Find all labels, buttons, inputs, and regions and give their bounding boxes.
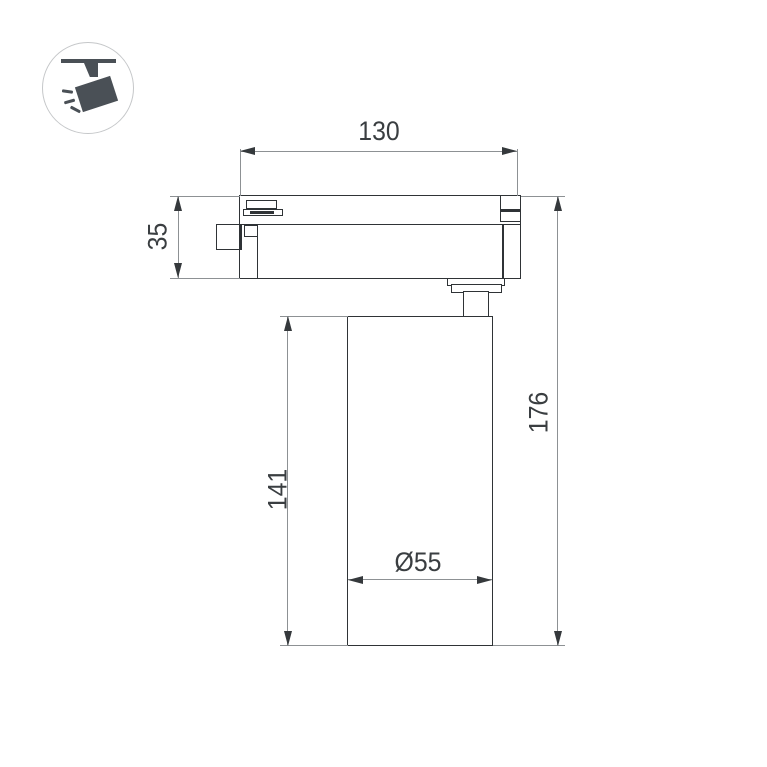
extension-line bbox=[240, 149, 241, 196]
technical-drawing-page: 130 35 141 176 Ø55 bbox=[0, 0, 767, 767]
dimension-label-body-height: 141 bbox=[265, 448, 292, 531]
icon-light-ray-icon bbox=[70, 106, 81, 113]
arrowhead-icon bbox=[348, 576, 363, 584]
icon-light-ray-icon bbox=[62, 89, 73, 93]
arrowhead-icon bbox=[554, 196, 562, 211]
arrowhead-icon bbox=[174, 196, 182, 211]
arrowhead-icon bbox=[240, 147, 255, 155]
adapter-inner-left-line bbox=[257, 225, 259, 279]
adapter-divider-line bbox=[239, 224, 521, 226]
icon-track-bar bbox=[61, 59, 116, 63]
arrowhead-icon bbox=[284, 316, 292, 331]
lamp-cylinder-body bbox=[347, 316, 493, 646]
dimension-label-adapter-height: 35 bbox=[145, 200, 172, 274]
dimension-label-diameter: Ø55 bbox=[367, 549, 468, 576]
arrowhead-icon bbox=[477, 576, 492, 584]
adapter-latch-slot-crossbar bbox=[500, 209, 522, 212]
dimension-line-diameter bbox=[348, 579, 492, 580]
adapter-clip-fill bbox=[250, 211, 274, 215]
arrowhead-icon bbox=[174, 263, 182, 278]
arrowhead-icon bbox=[554, 631, 562, 646]
arrowhead-icon bbox=[284, 631, 292, 646]
dimension-line-width bbox=[240, 151, 517, 152]
arrowhead-icon bbox=[502, 147, 517, 155]
track-spotlight-icon bbox=[42, 42, 134, 134]
dimension-label-width: 130 bbox=[342, 118, 416, 145]
icon-stem bbox=[84, 63, 98, 77]
adapter-inner-right-line bbox=[502, 225, 504, 279]
dimension-line-total-height bbox=[557, 196, 558, 646]
adapter-left-edge bbox=[239, 225, 241, 250]
neck-arm bbox=[463, 291, 489, 318]
dimension-label-total-height: 176 bbox=[526, 371, 553, 454]
extension-line bbox=[517, 149, 518, 196]
icon-lamp-head bbox=[75, 76, 118, 112]
icon-light-ray-icon bbox=[64, 98, 75, 104]
